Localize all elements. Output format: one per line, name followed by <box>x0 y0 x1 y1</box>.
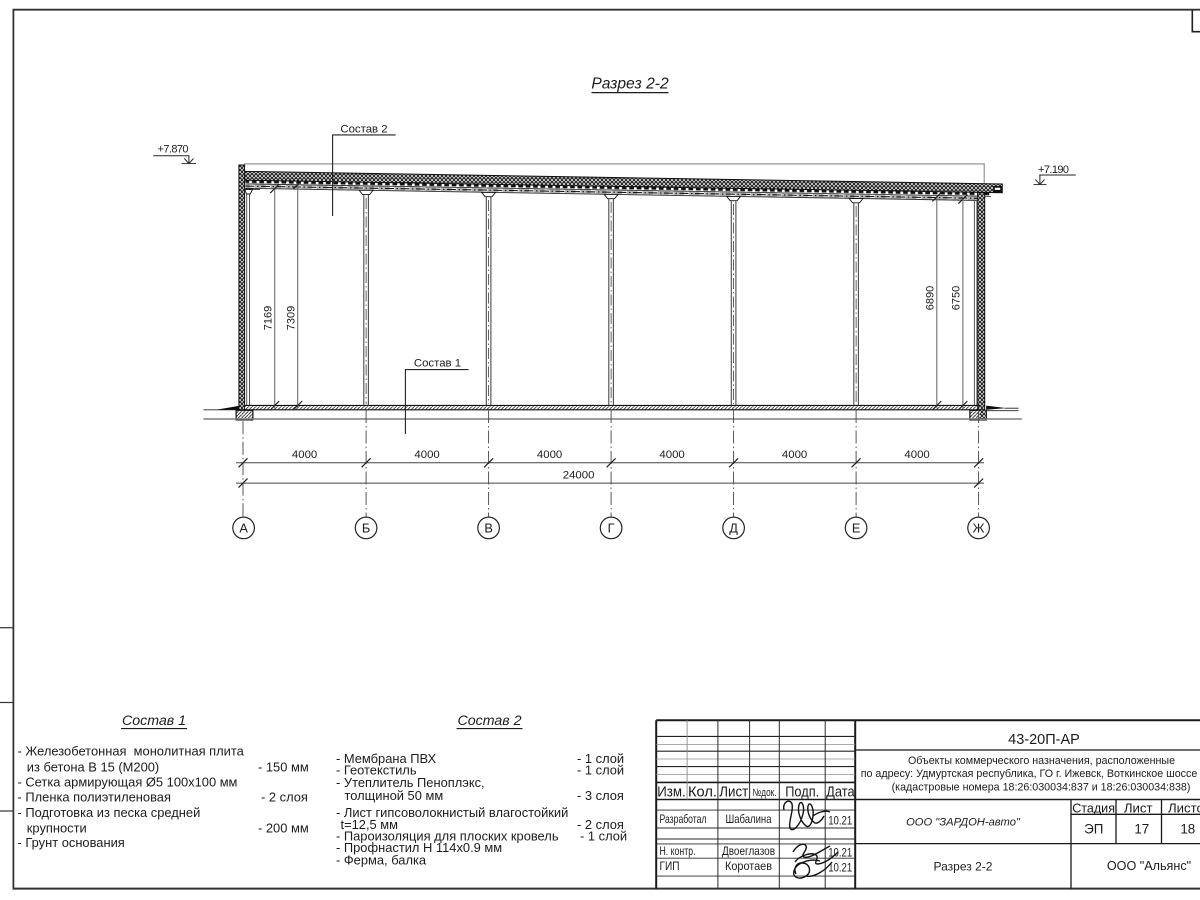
svg-text:Ж: Ж <box>973 520 985 535</box>
svg-text:Разрез 2-2: Разрез 2-2 <box>591 76 669 93</box>
svg-text:по адресу: Удмуртская республи: по адресу: Удмуртская республика, ГО г. … <box>861 768 1198 780</box>
svg-text:ООО "Альянс": ООО "Альянс" <box>1107 859 1191 873</box>
svg-text:- 1 слой: - 1 слой <box>580 829 627 844</box>
svg-text:ГИП: ГИП <box>660 860 680 873</box>
svg-text:В: В <box>484 520 493 535</box>
svg-text:Объекты коммерческого назначен: Объекты коммерческого назначения, распол… <box>908 755 1175 767</box>
svg-text:Лист: Лист <box>719 784 748 801</box>
svg-text:- Грунт основания: - Грунт основания <box>18 835 125 850</box>
svg-text:+7.870: +7.870 <box>158 144 189 156</box>
svg-text:- 2 слоя: - 2 слоя <box>261 789 308 804</box>
svg-text:Двоеглазов: Двоеглазов <box>722 845 775 858</box>
svg-text:Д: Д <box>729 520 738 535</box>
svg-text:Состав 2: Состав 2 <box>340 123 387 135</box>
svg-text:ЭП: ЭП <box>1084 822 1103 837</box>
svg-text:- Подготовка из песка средней: - Подготовка из песка средней <box>18 805 201 820</box>
svg-text:- 3 слоя: - 3 слоя <box>577 788 624 803</box>
svg-text:17: 17 <box>1134 822 1149 837</box>
svg-text:Состав 1: Состав 1 <box>122 713 186 729</box>
svg-text:- Железобетонная монолитная п: - Железобетонная монолитная плита <box>18 743 245 758</box>
svg-text:4000: 4000 <box>414 449 439 461</box>
svg-text:- 200 мм: - 200 мм <box>258 820 309 835</box>
svg-text:10.21: 10.21 <box>828 815 852 828</box>
svg-text:Изм.: Изм. <box>657 784 686 801</box>
svg-text:43-20П-АР: 43-20П-АР <box>1008 732 1080 748</box>
svg-text:7309: 7309 <box>286 306 298 330</box>
svg-text:Кол.: Кол. <box>688 784 717 801</box>
svg-text:Лист: Лист <box>1124 801 1153 816</box>
svg-text:6750: 6750 <box>951 286 963 310</box>
svg-text:Б: Б <box>362 520 370 535</box>
svg-text:Дата: Дата <box>826 784 855 801</box>
svg-text:- 150 мм: - 150 мм <box>258 760 309 775</box>
svg-text:4000: 4000 <box>537 449 562 461</box>
svg-text:- Сетка армирующая Ø5 100х100: - Сетка армирующая Ø5 100х100 мм <box>18 774 238 789</box>
svg-text:10.21: 10.21 <box>828 862 852 875</box>
svg-text:4000: 4000 <box>659 449 684 461</box>
svg-text:крупности: крупности <box>27 820 87 835</box>
svg-text:7169: 7169 <box>263 306 275 330</box>
svg-text:ООО "ЗАРДОН-авто": ООО "ЗАРДОН-авто" <box>906 816 1021 828</box>
svg-text:Разработал: Разработал <box>660 813 707 826</box>
svg-text:- 1 слой: - 1 слой <box>577 762 624 777</box>
svg-text:4000: 4000 <box>904 449 929 461</box>
svg-text:Е: Е <box>852 520 861 535</box>
svg-text:Шабалина: Шабалина <box>726 813 772 826</box>
svg-text:Стадия: Стадия <box>1072 801 1115 816</box>
svg-text:4000: 4000 <box>782 449 807 461</box>
svg-text:Состав 2: Состав 2 <box>457 713 521 729</box>
svg-text:+7.190: +7.190 <box>1038 164 1069 176</box>
svg-text:- Пленка полиэтиленовая: - Пленка полиэтиленовая <box>18 789 171 804</box>
svg-text:№док.: №док. <box>753 787 777 799</box>
svg-text:- Ферма, балка: - Ферма, балка <box>336 852 427 867</box>
svg-text:А: А <box>239 520 248 535</box>
svg-text:из бетона В 15 (М200): из бетона В 15 (М200) <box>27 760 159 775</box>
svg-text:толщиной 50 мм: толщиной 50 мм <box>345 788 444 803</box>
svg-text:Разрез 2-2: Разрез 2-2 <box>934 860 993 874</box>
svg-text:Состав 1: Состав 1 <box>414 357 461 369</box>
svg-text:Листов: Листов <box>1168 801 1200 816</box>
svg-text:4000: 4000 <box>292 449 317 461</box>
svg-text:(кадастровые номера 18:26:0300: (кадастровые номера 18:26:030034:837 и 1… <box>892 782 1191 794</box>
svg-text:6890: 6890 <box>925 286 937 310</box>
svg-text:Подп.: Подп. <box>785 784 819 801</box>
svg-text:Н. контр.: Н. контр. <box>660 845 696 858</box>
svg-text:24000: 24000 <box>563 469 595 481</box>
svg-text:Коротаев: Коротаев <box>725 860 772 873</box>
svg-text:Г: Г <box>608 520 615 535</box>
svg-text:18: 18 <box>1180 822 1195 837</box>
